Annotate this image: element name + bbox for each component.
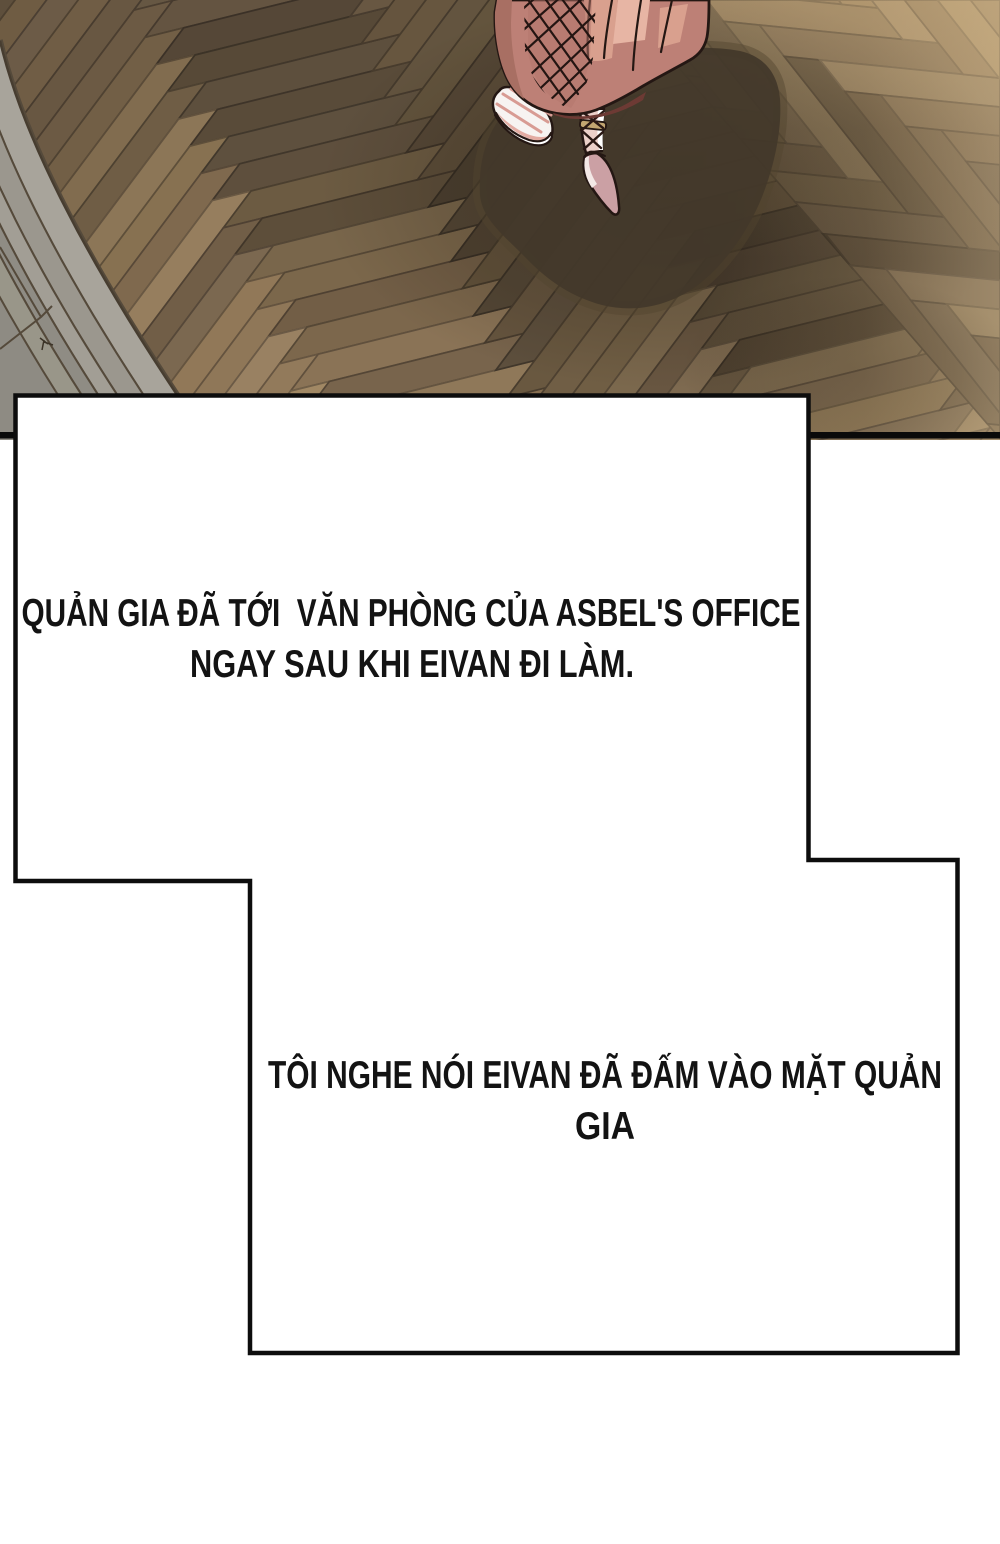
svg-text:QUẢN GIA ĐÃ TỚI VĂN PHÒNG CỦA: QUẢN GIA ĐÃ TỚI VĂN PHÒNG CỦA ASBEL'S OF…	[22, 591, 801, 635]
svg-text:TÔI NGHE NÓI EIVAN ĐÃ ĐẤM VÀO: TÔI NGHE NÓI EIVAN ĐÃ ĐẤM VÀO MẶT QUẢN	[268, 1052, 942, 1097]
svg-text:GIA: GIA	[575, 1105, 635, 1148]
svg-text:NGAY SAU KHI EIVAN ĐI LÀM.: NGAY SAU KHI EIVAN ĐI LÀM.	[190, 642, 634, 686]
